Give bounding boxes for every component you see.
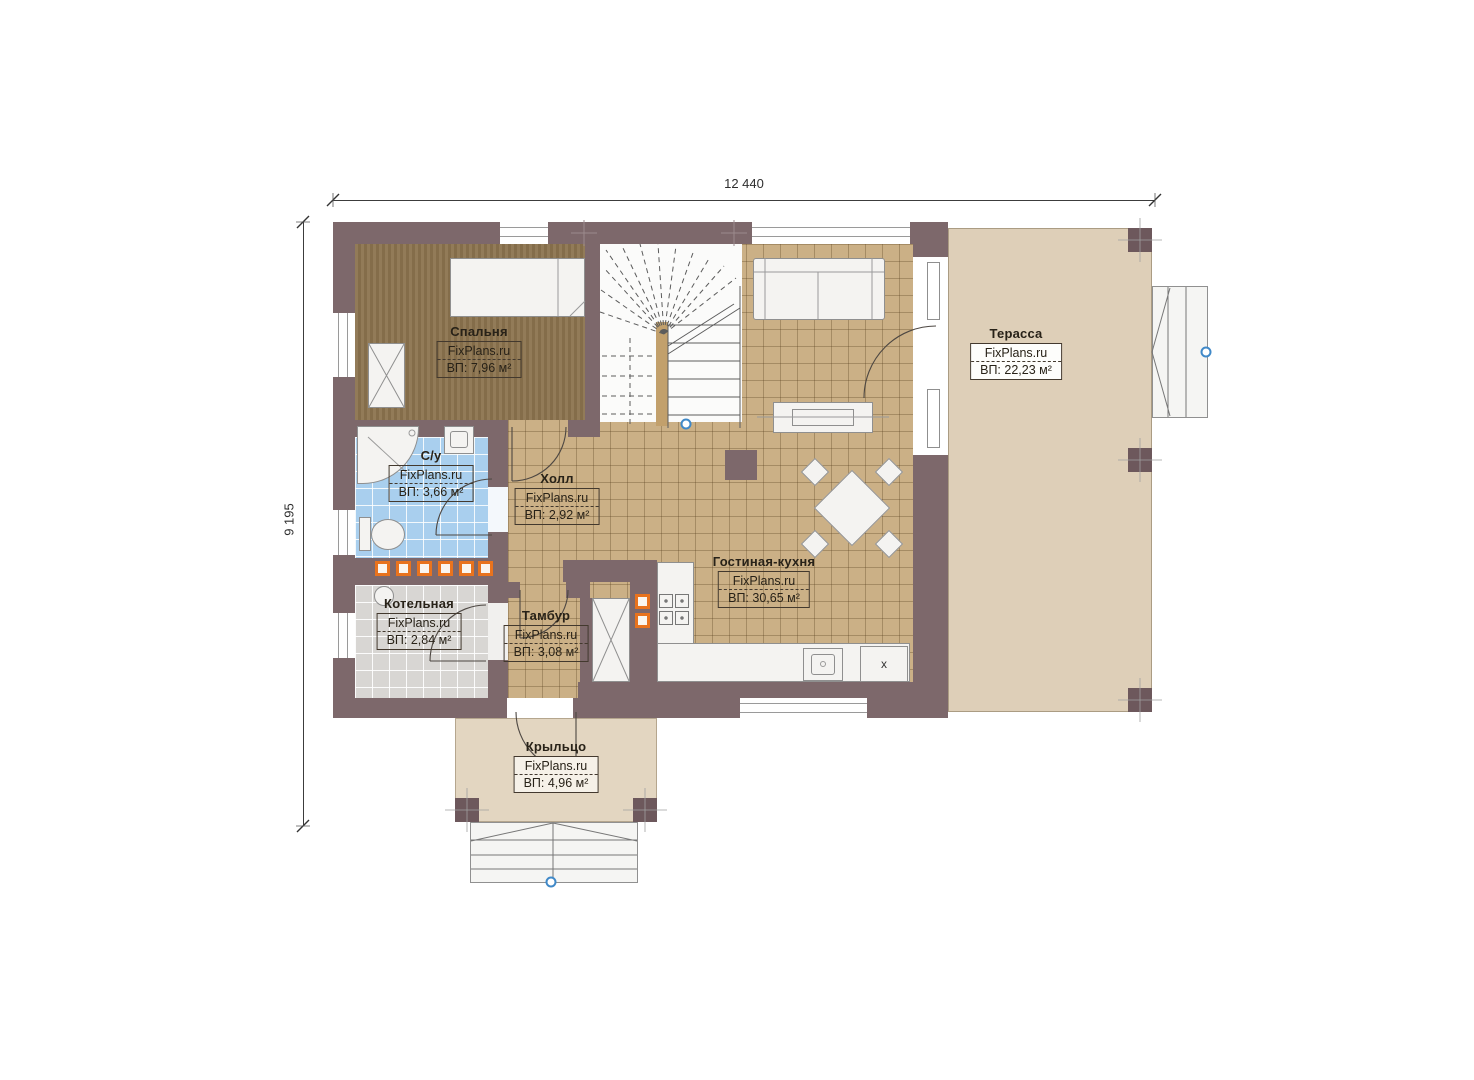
porch-column <box>633 798 657 822</box>
heater-flue-icon <box>417 561 432 576</box>
chimney-flue-icon <box>635 613 650 628</box>
wall-segment <box>488 437 508 487</box>
watermark-text: FixPlans.ru <box>516 489 599 507</box>
room-name: Холл <box>515 471 600 486</box>
watermark-text: FixPlans.ru <box>505 626 588 644</box>
stair-area <box>600 244 742 422</box>
toilet-tank <box>359 517 371 551</box>
dimension-height-line <box>303 222 304 826</box>
door-opening <box>507 698 573 718</box>
room-area: ВП: 2,92 м² <box>516 507 599 524</box>
watermark-box: FixPlans.ru ВП: 2,92 м² <box>515 488 600 525</box>
room-name: Терасса <box>970 326 1062 341</box>
chimney-flue-icon <box>635 594 650 609</box>
kitchen-sink-basin <box>811 654 835 675</box>
watermark-box: FixPlans.ru ВП: 22,23 м² <box>970 343 1062 380</box>
bathroom-sink-basin <box>450 431 468 448</box>
wall-segment <box>578 682 948 698</box>
terrace-door-panel <box>927 389 940 448</box>
room-name: Спальня <box>437 324 522 339</box>
tv <box>792 409 854 426</box>
room-name: С/у <box>389 448 474 463</box>
floor-plan-canvas: 12 440 9 195 <box>0 0 1474 1080</box>
sofa <box>753 258 885 320</box>
wall-segment <box>573 698 740 718</box>
wall-segment <box>333 244 355 313</box>
room-name: Котельная <box>377 596 462 611</box>
room-area: ВП: 3,08 м² <box>505 644 588 661</box>
door-opening <box>488 487 508 532</box>
watermark-box: FixPlans.ru ВП: 4,96 м² <box>514 756 599 793</box>
dimension-height-label: 9 195 <box>282 480 297 560</box>
closet <box>592 598 630 682</box>
room-label-bathroom: С/у FixPlans.ru ВП: 3,66 м² <box>389 448 474 502</box>
heater-flue-icon <box>438 561 453 576</box>
watermark-box: FixPlans.ru ВП: 7,96 м² <box>437 341 522 378</box>
window <box>500 222 548 244</box>
terrace-door-panel <box>927 262 940 320</box>
watermark-text: FixPlans.ru <box>719 572 809 590</box>
wall-segment <box>568 420 585 437</box>
wall-segment <box>867 698 948 718</box>
window <box>752 222 910 244</box>
wall-segment <box>333 555 355 613</box>
room-label-boiler: Котельная FixPlans.ru ВП: 2,84 м² <box>377 596 462 650</box>
toilet-bowl <box>371 519 405 550</box>
fridge-cabinet: x <box>860 646 908 682</box>
wall-segment <box>333 658 355 698</box>
wall-segment <box>910 222 948 244</box>
wall-segment <box>563 560 657 582</box>
room-label-vestibule: Тамбур FixPlans.ru ВП: 3,08 м² <box>504 608 589 662</box>
dimension-width-line <box>333 200 1155 201</box>
wall-segment <box>585 244 600 437</box>
heater-flue-icon <box>478 561 493 576</box>
wardrobe <box>368 343 405 408</box>
room-name: Гостиная-кухня <box>713 554 815 569</box>
wall-segment <box>505 582 520 598</box>
stove-burner-icon <box>659 594 673 608</box>
room-area: ВП: 7,96 м² <box>438 360 521 377</box>
room-label-hall: Холл FixPlans.ru ВП: 2,92 м² <box>515 471 600 525</box>
watermark-box: FixPlans.ru ВП: 3,66 м² <box>389 465 474 502</box>
watermark-box: FixPlans.ru ВП: 2,84 м² <box>377 613 462 650</box>
window <box>740 698 867 718</box>
heater-flue-icon <box>375 561 390 576</box>
stove-burner-icon <box>675 594 689 608</box>
room-area: ВП: 4,96 м² <box>515 775 598 792</box>
window <box>333 613 355 658</box>
room-name: Крыльцо <box>514 739 599 754</box>
watermark-text: FixPlans.ru <box>515 757 598 775</box>
stair-stringer <box>656 322 668 426</box>
window <box>333 510 355 555</box>
terrace-deck <box>948 228 1152 712</box>
bed <box>450 258 585 317</box>
living-room-column <box>725 450 757 480</box>
wall-segment <box>913 244 948 257</box>
room-label-bedroom: Спальня FixPlans.ru ВП: 7,96 м² <box>437 324 522 378</box>
room-area: ВП: 30,65 м² <box>719 590 809 607</box>
watermark-box: FixPlans.ru ВП: 3,08 м² <box>504 625 589 662</box>
watermark-text: FixPlans.ru <box>971 344 1061 362</box>
room-name: Тамбур <box>504 608 589 623</box>
wall-segment <box>488 532 508 558</box>
terrace-column <box>1128 448 1152 472</box>
room-label-porch: Крыльцо FixPlans.ru ВП: 4,96 м² <box>514 739 599 793</box>
wall-segment <box>333 698 507 718</box>
heater-flue-icon <box>396 561 411 576</box>
stove-burner-icon <box>659 611 673 625</box>
room-area: ВП: 3,66 м² <box>390 484 473 501</box>
heater-flue-icon <box>459 561 474 576</box>
watermark-text: FixPlans.ru <box>438 342 521 360</box>
terrace-stair <box>1152 286 1208 418</box>
watermark-box: FixPlans.ru ВП: 30,65 м² <box>718 571 810 608</box>
room-area: ВП: 22,23 м² <box>971 362 1061 379</box>
porch-column <box>455 798 479 822</box>
wall-segment <box>488 660 508 698</box>
stove-burner-icon <box>675 611 689 625</box>
terrace-column <box>1128 228 1152 252</box>
room-label-living-kitchen: Гостиная-кухня FixPlans.ru ВП: 30,65 м² <box>713 554 815 608</box>
wall-segment <box>333 377 355 510</box>
watermark-text: FixPlans.ru <box>378 614 461 632</box>
porch-steps <box>470 822 638 883</box>
wall-segment <box>913 455 948 698</box>
terrace-column <box>1128 688 1152 712</box>
fridge-label: x <box>881 657 887 671</box>
room-label-terrace: Терасса FixPlans.ru ВП: 22,23 м² <box>970 326 1062 380</box>
watermark-text: FixPlans.ru <box>390 466 473 484</box>
room-area: ВП: 2,84 м² <box>378 632 461 649</box>
wall-segment <box>548 222 752 244</box>
wall-segment <box>333 222 500 244</box>
dimension-width-label: 12 440 <box>333 176 1155 191</box>
window <box>333 313 355 377</box>
wall-segment <box>566 582 590 598</box>
